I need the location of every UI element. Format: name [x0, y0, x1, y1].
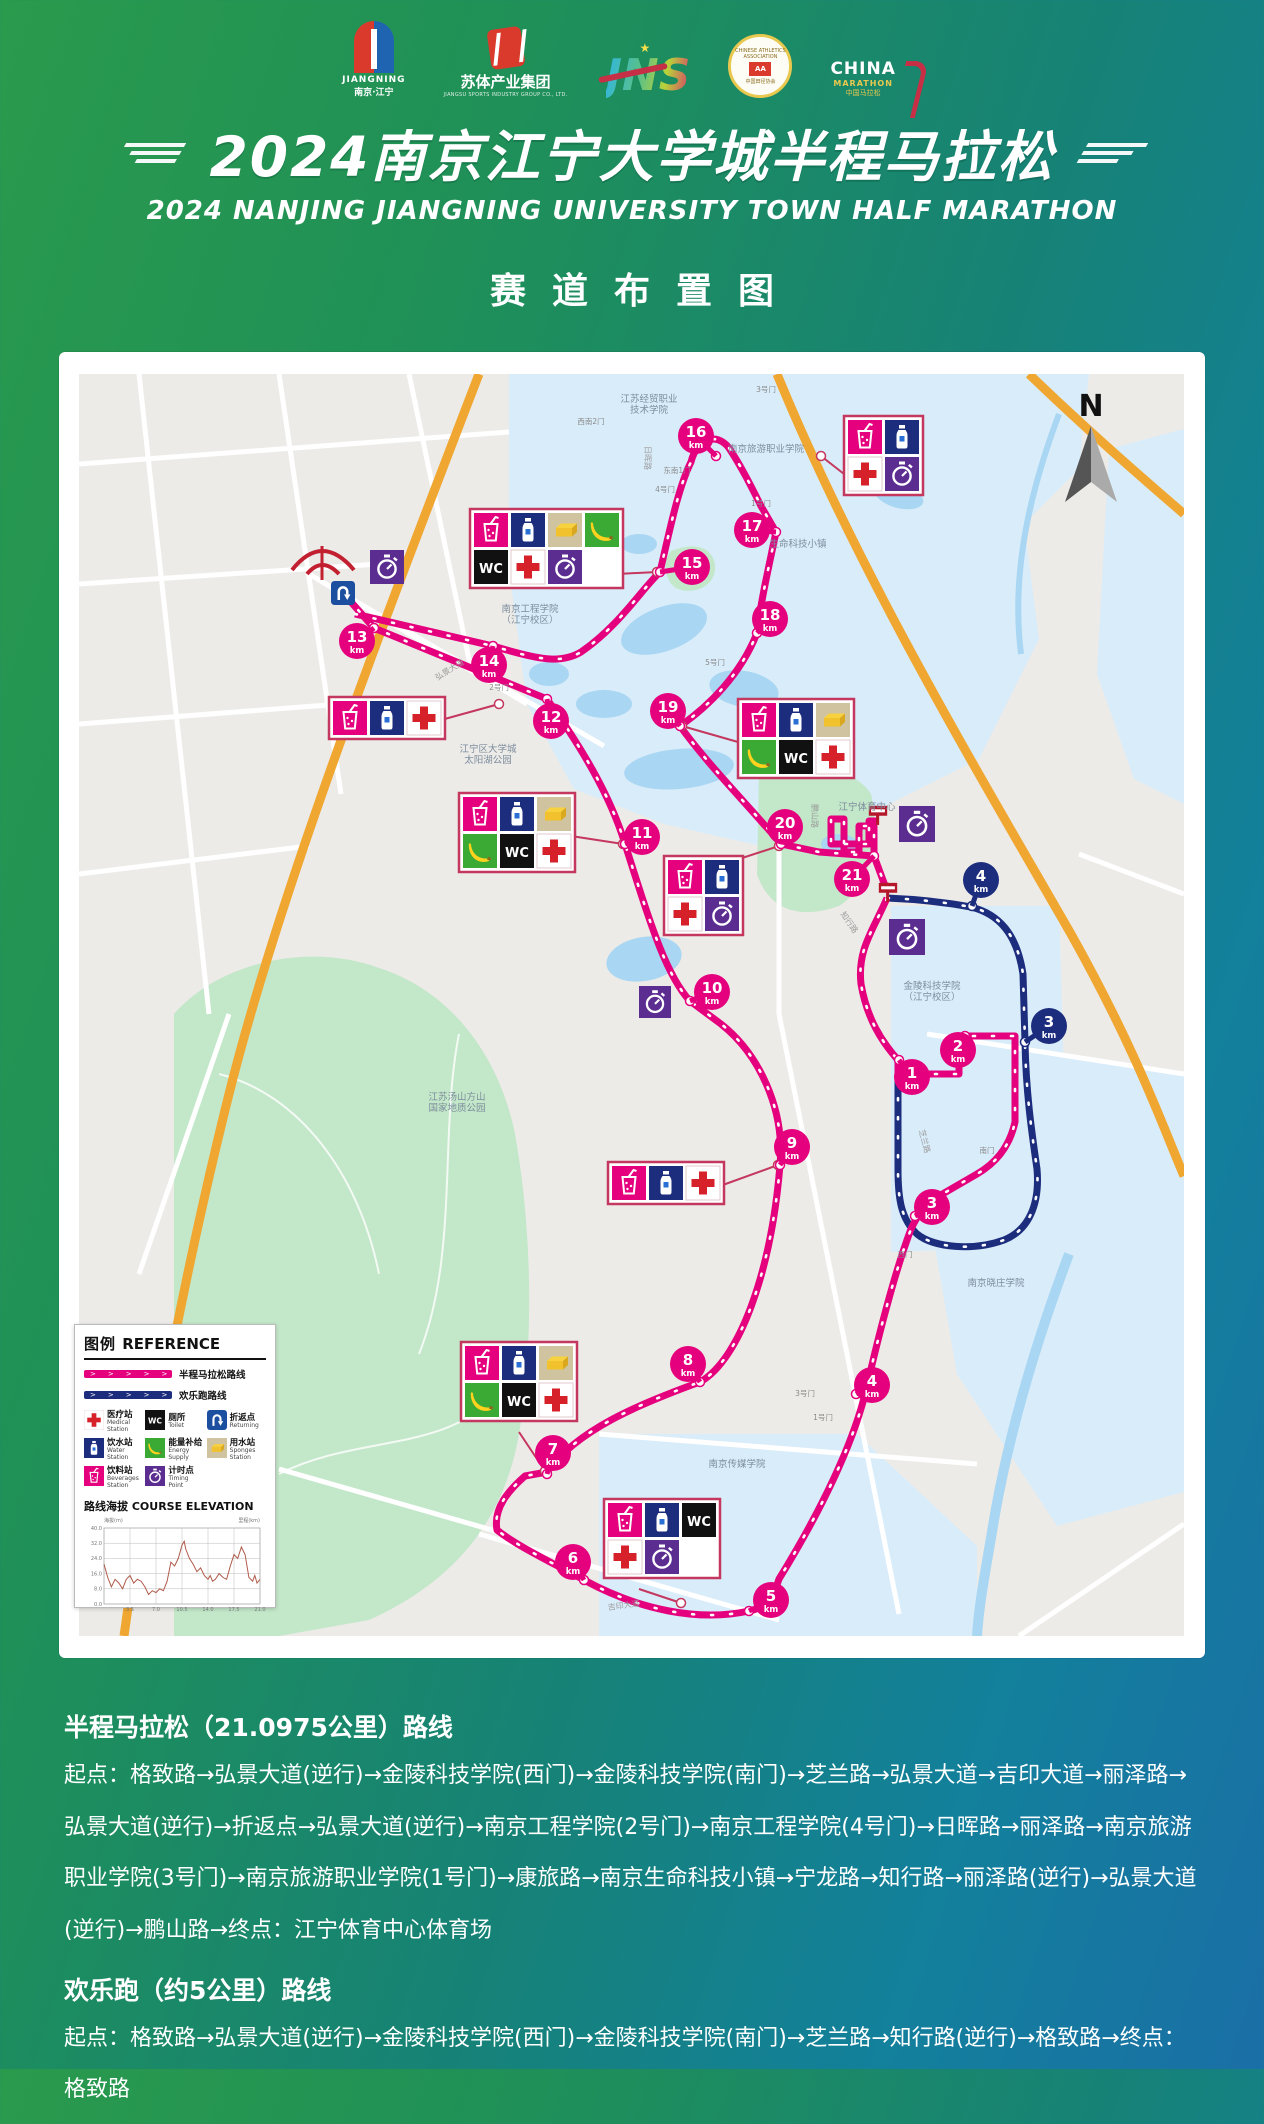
- sponsor-logos: JIANGNING 南京·江宁 苏体产业集团 JIANGSU SPORTS IN…: [0, 18, 1264, 98]
- cup-icon: [474, 513, 508, 547]
- wc-icon: WC: [145, 1410, 165, 1430]
- svg-text:km: km: [778, 832, 793, 842]
- svg-text:8.0: 8.0: [94, 1587, 102, 1593]
- station-box: [329, 697, 445, 739]
- svg-text:南京晓庄学院: 南京晓庄学院: [967, 1277, 1025, 1289]
- event-title-zh: 2024南京江宁大学城半程马拉松: [209, 112, 1054, 192]
- gate-label: 1号门: [751, 499, 771, 508]
- svg-text:km: km: [845, 884, 860, 894]
- svg-text:生命科技小镇: 生命科技小镇: [769, 538, 827, 550]
- svg-text:南京旅游职业学院: 南京旅游职业学院: [728, 443, 805, 455]
- gate-label: 4号门: [655, 485, 675, 494]
- wc-icon: WC: [474, 550, 508, 584]
- svg-text:24.0: 24.0: [91, 1556, 102, 1562]
- gate-label: 南门: [980, 1145, 995, 1155]
- timer-icon: [145, 1466, 165, 1486]
- fun-run-heading: 欢乐跑（约5公里）路线: [64, 1971, 1204, 2007]
- svg-text:3: 3: [927, 1194, 937, 1212]
- elevation-title-en: COURSE ELEVATION: [132, 1500, 254, 1513]
- route-line-label: 欢乐跑路线: [179, 1388, 227, 1402]
- svg-text:6: 6: [568, 1549, 578, 1567]
- banana-icon: [145, 1438, 165, 1458]
- legend-item-en: Timing Point: [168, 1476, 204, 1489]
- svg-text:17: 17: [742, 517, 763, 535]
- cup-icon: [612, 1166, 646, 1200]
- map-label: 南京晓庄学院: [967, 1277, 1025, 1289]
- station-point: [495, 700, 504, 709]
- svg-text:4: 4: [976, 867, 986, 885]
- gate-label: 3号门: [756, 385, 776, 394]
- svg-text:9: 9: [787, 1134, 797, 1152]
- station-box: WC: [459, 793, 575, 872]
- bottle-icon: [370, 701, 404, 735]
- svg-text:km: km: [745, 535, 760, 545]
- banana-icon: [463, 834, 497, 868]
- station-box: WC: [604, 1499, 720, 1578]
- svg-text:km: km: [785, 1152, 800, 1162]
- svg-text:11: 11: [632, 824, 653, 842]
- timer-icon: [889, 919, 925, 955]
- cup-icon: [84, 1466, 104, 1486]
- svg-text:15: 15: [682, 554, 703, 572]
- fun-run-route: 起点：格致路→弘景大道(逆行)→金陵科技学院(西门)→金陵科技学院(南门)→芝兰…: [64, 2013, 1204, 2116]
- jiangning-logo-zh: 南京·江宁: [354, 85, 393, 98]
- svg-text:km: km: [763, 624, 778, 634]
- bottle-icon: [84, 1438, 104, 1458]
- sponge-icon: [207, 1438, 227, 1458]
- jiangning-pagoda-icon: [354, 21, 394, 73]
- svg-text:南京工程学院: 南京工程学院: [501, 603, 559, 615]
- svg-text:3: 3: [1044, 1013, 1054, 1031]
- route-line-sample: >>>>>: [84, 1391, 172, 1399]
- svg-text:km: km: [482, 670, 497, 680]
- jns-logo: JNS: [606, 54, 691, 98]
- timer-icon: [145, 1466, 165, 1490]
- legend-item-timer: 计时点 Timing Point: [145, 1466, 204, 1490]
- station-box: WC: [461, 1342, 577, 1421]
- svg-text:20: 20: [775, 814, 796, 832]
- legend-item-en: Beverages Station: [107, 1476, 143, 1489]
- legend-item-cross: 医疗站 Medical Station: [84, 1410, 143, 1434]
- map-panel: WC WC: [59, 352, 1205, 1658]
- svg-text:km: km: [661, 716, 676, 726]
- lake: [529, 662, 569, 686]
- banana-icon: [145, 1438, 165, 1462]
- svg-text:2: 2: [953, 1037, 963, 1055]
- cup-icon: [848, 420, 882, 454]
- timer-icon: [885, 457, 919, 491]
- cross-icon: [608, 1540, 642, 1574]
- cross-icon: [407, 701, 441, 735]
- cross-icon: [848, 457, 882, 491]
- road-label: 鹏山路: [810, 804, 820, 828]
- station-box: WC: [738, 699, 854, 778]
- legend-item-bottle: 饮水站 Water Station: [84, 1438, 143, 1462]
- svg-text:WC: WC: [507, 1395, 531, 1410]
- svg-text:km: km: [905, 1082, 920, 1092]
- svg-text:10: 10: [702, 979, 723, 997]
- svg-text:10.5: 10.5: [176, 1607, 187, 1613]
- bottle-icon: [705, 860, 739, 894]
- station-box: [608, 1162, 724, 1204]
- legend-item-en: Medical Station: [107, 1420, 143, 1433]
- uturn-icon: [207, 1410, 227, 1430]
- elevation-chart: 海拔(m)里程(km)0.08.016.024.032.040.03.57.01…: [84, 1514, 266, 1620]
- legend-title-zh: 图例: [84, 1335, 116, 1353]
- svg-text:江宁区大学城: 江宁区大学城: [459, 743, 517, 755]
- gate-label: 2号门: [489, 683, 509, 692]
- svg-text:16.0: 16.0: [91, 1571, 102, 1577]
- legend-title: 图例 REFERENCE: [84, 1333, 266, 1360]
- speedline-left-icon: [115, 141, 198, 163]
- cross-icon: [686, 1166, 720, 1200]
- cross-icon: [84, 1410, 104, 1434]
- timer-icon: [645, 1540, 679, 1574]
- svg-text:3.5: 3.5: [126, 1607, 134, 1613]
- station-point: [817, 452, 826, 461]
- road-label: 日晖路: [643, 446, 653, 470]
- caa-flag-icon: AA: [749, 62, 771, 76]
- route-line-sample: >>>>>: [84, 1370, 172, 1378]
- svg-text:N: N: [1078, 389, 1103, 424]
- svg-text:16: 16: [686, 423, 707, 441]
- bottle-icon: [649, 1166, 683, 1200]
- legend-item-en: Energy Supply: [168, 1448, 204, 1461]
- banana-icon: [585, 513, 619, 547]
- timer-icon: [639, 986, 671, 1018]
- legend-title-en: REFERENCE: [122, 1335, 220, 1353]
- svg-text:14.0: 14.0: [202, 1607, 213, 1613]
- china-marathon-l1: CHINA: [830, 59, 895, 79]
- legend-items: 医疗站 Medical Station WC 厕所 Toilet 折返点 Ret…: [84, 1410, 266, 1490]
- svg-text:km: km: [1042, 1031, 1057, 1041]
- gate-label: 西门: [898, 1250, 913, 1259]
- svg-text:km: km: [685, 572, 700, 582]
- timer-icon: [370, 550, 404, 584]
- gate-label: 5号门: [705, 658, 725, 667]
- caa-seal-icon: CHINESE ATHLETICS ASSOCIATION AA 中国田径协会: [728, 34, 792, 98]
- svg-text:21.0: 21.0: [254, 1607, 265, 1613]
- svg-text:32.0: 32.0: [91, 1541, 102, 1547]
- timer-icon: [899, 806, 935, 842]
- svg-text:太阳湖公园: 太阳湖公园: [464, 754, 512, 766]
- wc-icon: WC: [502, 1383, 536, 1417]
- china-marathon-l3: 中国马拉松: [846, 88, 881, 98]
- svg-text:技术学院: 技术学院: [630, 404, 669, 416]
- wc-icon: WC: [500, 834, 534, 868]
- svg-text:WC: WC: [479, 562, 503, 577]
- svg-text:8: 8: [683, 1351, 693, 1369]
- uturn-icon: [207, 1410, 227, 1434]
- svg-text:18: 18: [760, 606, 781, 624]
- gate-label: 1号门: [813, 1413, 833, 1422]
- title-row: 2024南京江宁大学城半程马拉松: [0, 112, 1264, 192]
- svg-text:金陵科技学院: 金陵科技学院: [903, 980, 961, 992]
- map-legend: 图例 REFERENCE >>>>> 半程马拉松路线 >>>>> 欢乐跑路线 医…: [74, 1324, 276, 1608]
- legend-item-en: Water Station: [107, 1448, 143, 1461]
- station-point: [677, 1599, 686, 1608]
- legend-item-cup: 饮料站 Beverages Station: [84, 1466, 143, 1490]
- wc-icon: WC: [779, 740, 813, 774]
- svg-text:江苏经贸职业: 江苏经贸职业: [620, 393, 677, 405]
- speedline-right-icon: [1066, 141, 1149, 163]
- svg-text:7.0: 7.0: [152, 1607, 160, 1613]
- svg-text:km: km: [925, 1212, 940, 1222]
- banana-icon: [465, 1383, 499, 1417]
- bottle-icon: [779, 703, 813, 737]
- sponge-icon: [207, 1438, 227, 1462]
- caa-logo: CHINESE ATHLETICS ASSOCIATION AA 中国田径协会: [728, 34, 792, 98]
- legend-item-en: Toilet: [168, 1423, 185, 1430]
- svg-text:WC: WC: [687, 1515, 711, 1530]
- suti-sub: JIANGSU SPORTS INDUSTRY GROUP CO., LTD.: [444, 92, 568, 98]
- sponge-icon: [539, 1346, 573, 1380]
- svg-text:江宁体育中心: 江宁体育中心: [838, 801, 896, 813]
- svg-text:7: 7: [548, 1440, 558, 1458]
- svg-text:南京传媒学院: 南京传媒学院: [708, 1458, 766, 1470]
- station-box: WC: [470, 509, 623, 588]
- gate-label: 东南1门: [663, 465, 690, 475]
- map-label: 南京传媒学院: [708, 1458, 766, 1470]
- cross-icon: [511, 550, 545, 584]
- banana-icon: [742, 740, 776, 774]
- lake: [576, 690, 632, 718]
- svg-text:km: km: [865, 1390, 880, 1400]
- route-line-label: 半程马拉松路线: [179, 1367, 246, 1381]
- svg-text:km: km: [546, 1458, 561, 1468]
- sponge-icon: [548, 513, 582, 547]
- lake: [621, 534, 657, 554]
- svg-text:19: 19: [658, 698, 679, 716]
- svg-text:21: 21: [842, 866, 863, 884]
- elevation-title-zh: 路线海拔: [84, 1500, 128, 1513]
- elevation-title: 路线海拔 COURSE ELEVATION: [84, 1498, 266, 1514]
- svg-text:km: km: [681, 1369, 696, 1379]
- svg-text:WC: WC: [505, 846, 529, 861]
- legend-route-1: >>>>> 欢乐跑路线: [84, 1388, 266, 1402]
- jiangning-logo: JIANGNING 南京·江宁: [342, 21, 405, 98]
- svg-text:（江宁校区）: （江宁校区）: [903, 991, 960, 1003]
- cross-icon: [84, 1410, 104, 1430]
- svg-text:km: km: [350, 646, 365, 656]
- map-label: 金陵科技学院（江宁校区）: [903, 980, 961, 1003]
- suti-name: 苏体产业集团: [461, 71, 551, 92]
- jiangning-logo-en: JIANGNING: [342, 75, 405, 85]
- svg-text:江苏汤山方山: 江苏汤山方山: [428, 1091, 485, 1103]
- cup-icon: [608, 1503, 642, 1537]
- map-label: 南京旅游职业学院: [728, 443, 805, 455]
- svg-text:km: km: [566, 1567, 581, 1577]
- svg-text:13: 13: [347, 628, 368, 646]
- cross-icon: [816, 740, 850, 774]
- half-marathon-heading: 半程马拉松（21.0975公里）路线: [64, 1708, 1204, 1744]
- sponge-icon: [537, 797, 571, 831]
- svg-text:WC: WC: [148, 1417, 162, 1426]
- svg-text:14: 14: [479, 652, 500, 670]
- svg-text:km: km: [764, 1605, 779, 1615]
- gate-label: 西南2门: [577, 416, 604, 426]
- station-box: [844, 416, 923, 495]
- station-box: [664, 856, 743, 935]
- bottle-icon: [885, 420, 919, 454]
- svg-text:5: 5: [766, 1587, 776, 1605]
- caa-ring-bottom: 中国田径协会: [745, 78, 775, 85]
- svg-text:km: km: [544, 726, 559, 736]
- svg-text:km: km: [974, 885, 989, 895]
- cross-icon: [537, 834, 571, 868]
- svg-text:WC: WC: [784, 752, 808, 767]
- poster-header: JIANGNING 南京·江宁 苏体产业集团 JIANGSU SPORTS IN…: [0, 0, 1264, 314]
- legend-route-lines: >>>>> 半程马拉松路线 >>>>> 欢乐跑路线: [84, 1367, 266, 1402]
- timer-icon: [548, 550, 582, 584]
- course-map-subtitle: 赛道布置图: [0, 262, 1264, 314]
- map-label: 南京工程学院（江宁校区）: [501, 603, 559, 626]
- map-label: 江苏汤山方山国家地质公园: [428, 1091, 485, 1114]
- legend-item-banana: 能量补给 Energy Supply: [145, 1438, 204, 1462]
- suti-mark-icon: [486, 26, 525, 70]
- bottle-icon: [500, 797, 534, 831]
- gate-label: 3号门: [795, 1389, 815, 1398]
- legend-item-en: Returning: [230, 1423, 259, 1430]
- legend-item-sponge: 用水站 Sponges Station: [207, 1438, 266, 1462]
- svg-text:（江宁校区）: （江宁校区）: [501, 614, 558, 626]
- bottle-icon: [511, 513, 545, 547]
- elevation-chart-svg: 海拔(m)里程(km)0.08.016.024.032.040.03.57.01…: [84, 1514, 266, 1616]
- svg-text:0.0: 0.0: [94, 1602, 102, 1608]
- china-marathon-l2: MARATHON: [833, 79, 893, 88]
- svg-text:里程(km): 里程(km): [238, 1517, 260, 1524]
- svg-text:12: 12: [541, 708, 562, 726]
- svg-text:国家地质公园: 国家地质公园: [428, 1102, 485, 1114]
- wc-icon: WC: [145, 1410, 165, 1434]
- svg-text:1: 1: [907, 1064, 917, 1082]
- legend-item-en: Sponges Station: [230, 1448, 266, 1461]
- event-title-en: 2024 NANJING JIANGNING UNIVERSITY TOWN H…: [0, 196, 1264, 226]
- cup-icon: [668, 860, 702, 894]
- svg-text:km: km: [951, 1055, 966, 1065]
- half-marathon-route: 起点：格致路→弘景大道(逆行)→金陵科技学院(西门)→金陵科技学院(南门)→芝兰…: [64, 1750, 1204, 1957]
- timer-icon: [705, 897, 739, 931]
- cup-icon: [84, 1466, 104, 1490]
- svg-text:km: km: [705, 997, 720, 1007]
- map-label: 江宁体育中心: [838, 801, 896, 813]
- map-label: 江宁区大学城太阳湖公园: [459, 743, 517, 766]
- bottle-icon: [645, 1503, 679, 1537]
- suti-logo: 苏体产业集团 JIANGSU SPORTS INDUSTRY GROUP CO.…: [444, 28, 568, 98]
- svg-text:海拔(m): 海拔(m): [104, 1517, 123, 1524]
- svg-text:17.5: 17.5: [228, 1607, 239, 1613]
- legend-route-0: >>>>> 半程马拉松路线: [84, 1367, 266, 1381]
- cross-icon: [668, 897, 702, 931]
- cup-icon: [463, 797, 497, 831]
- wc-icon: WC: [682, 1503, 716, 1537]
- route-descriptions: 半程马拉松（21.0975公里）路线 起点：格致路→弘景大道(逆行)→金陵科技学…: [64, 1694, 1204, 2124]
- cup-icon: [333, 701, 367, 735]
- svg-text:4: 4: [867, 1372, 877, 1390]
- china-marathon-logo: CHINA MARATHON 中国马拉松: [830, 59, 921, 98]
- svg-text:km: km: [689, 441, 704, 451]
- uturn-icon: [331, 581, 355, 605]
- jns-runner-icon: JNS: [606, 54, 691, 98]
- bottle-icon: [84, 1438, 104, 1462]
- bottle-icon: [502, 1346, 536, 1380]
- legend-item-uturn: 折返点 Returning: [207, 1410, 266, 1434]
- cup-icon: [465, 1346, 499, 1380]
- svg-text:km: km: [635, 842, 650, 852]
- caa-ring-top: CHINESE ATHLETICS ASSOCIATION: [731, 48, 789, 60]
- svg-text:40.0: 40.0: [91, 1526, 102, 1532]
- cross-icon: [539, 1383, 573, 1417]
- map-label: 生命科技小镇: [769, 538, 827, 550]
- sponge-icon: [816, 703, 850, 737]
- cup-icon: [742, 703, 776, 737]
- legend-item-wc: WC 厕所 Toilet: [145, 1410, 204, 1434]
